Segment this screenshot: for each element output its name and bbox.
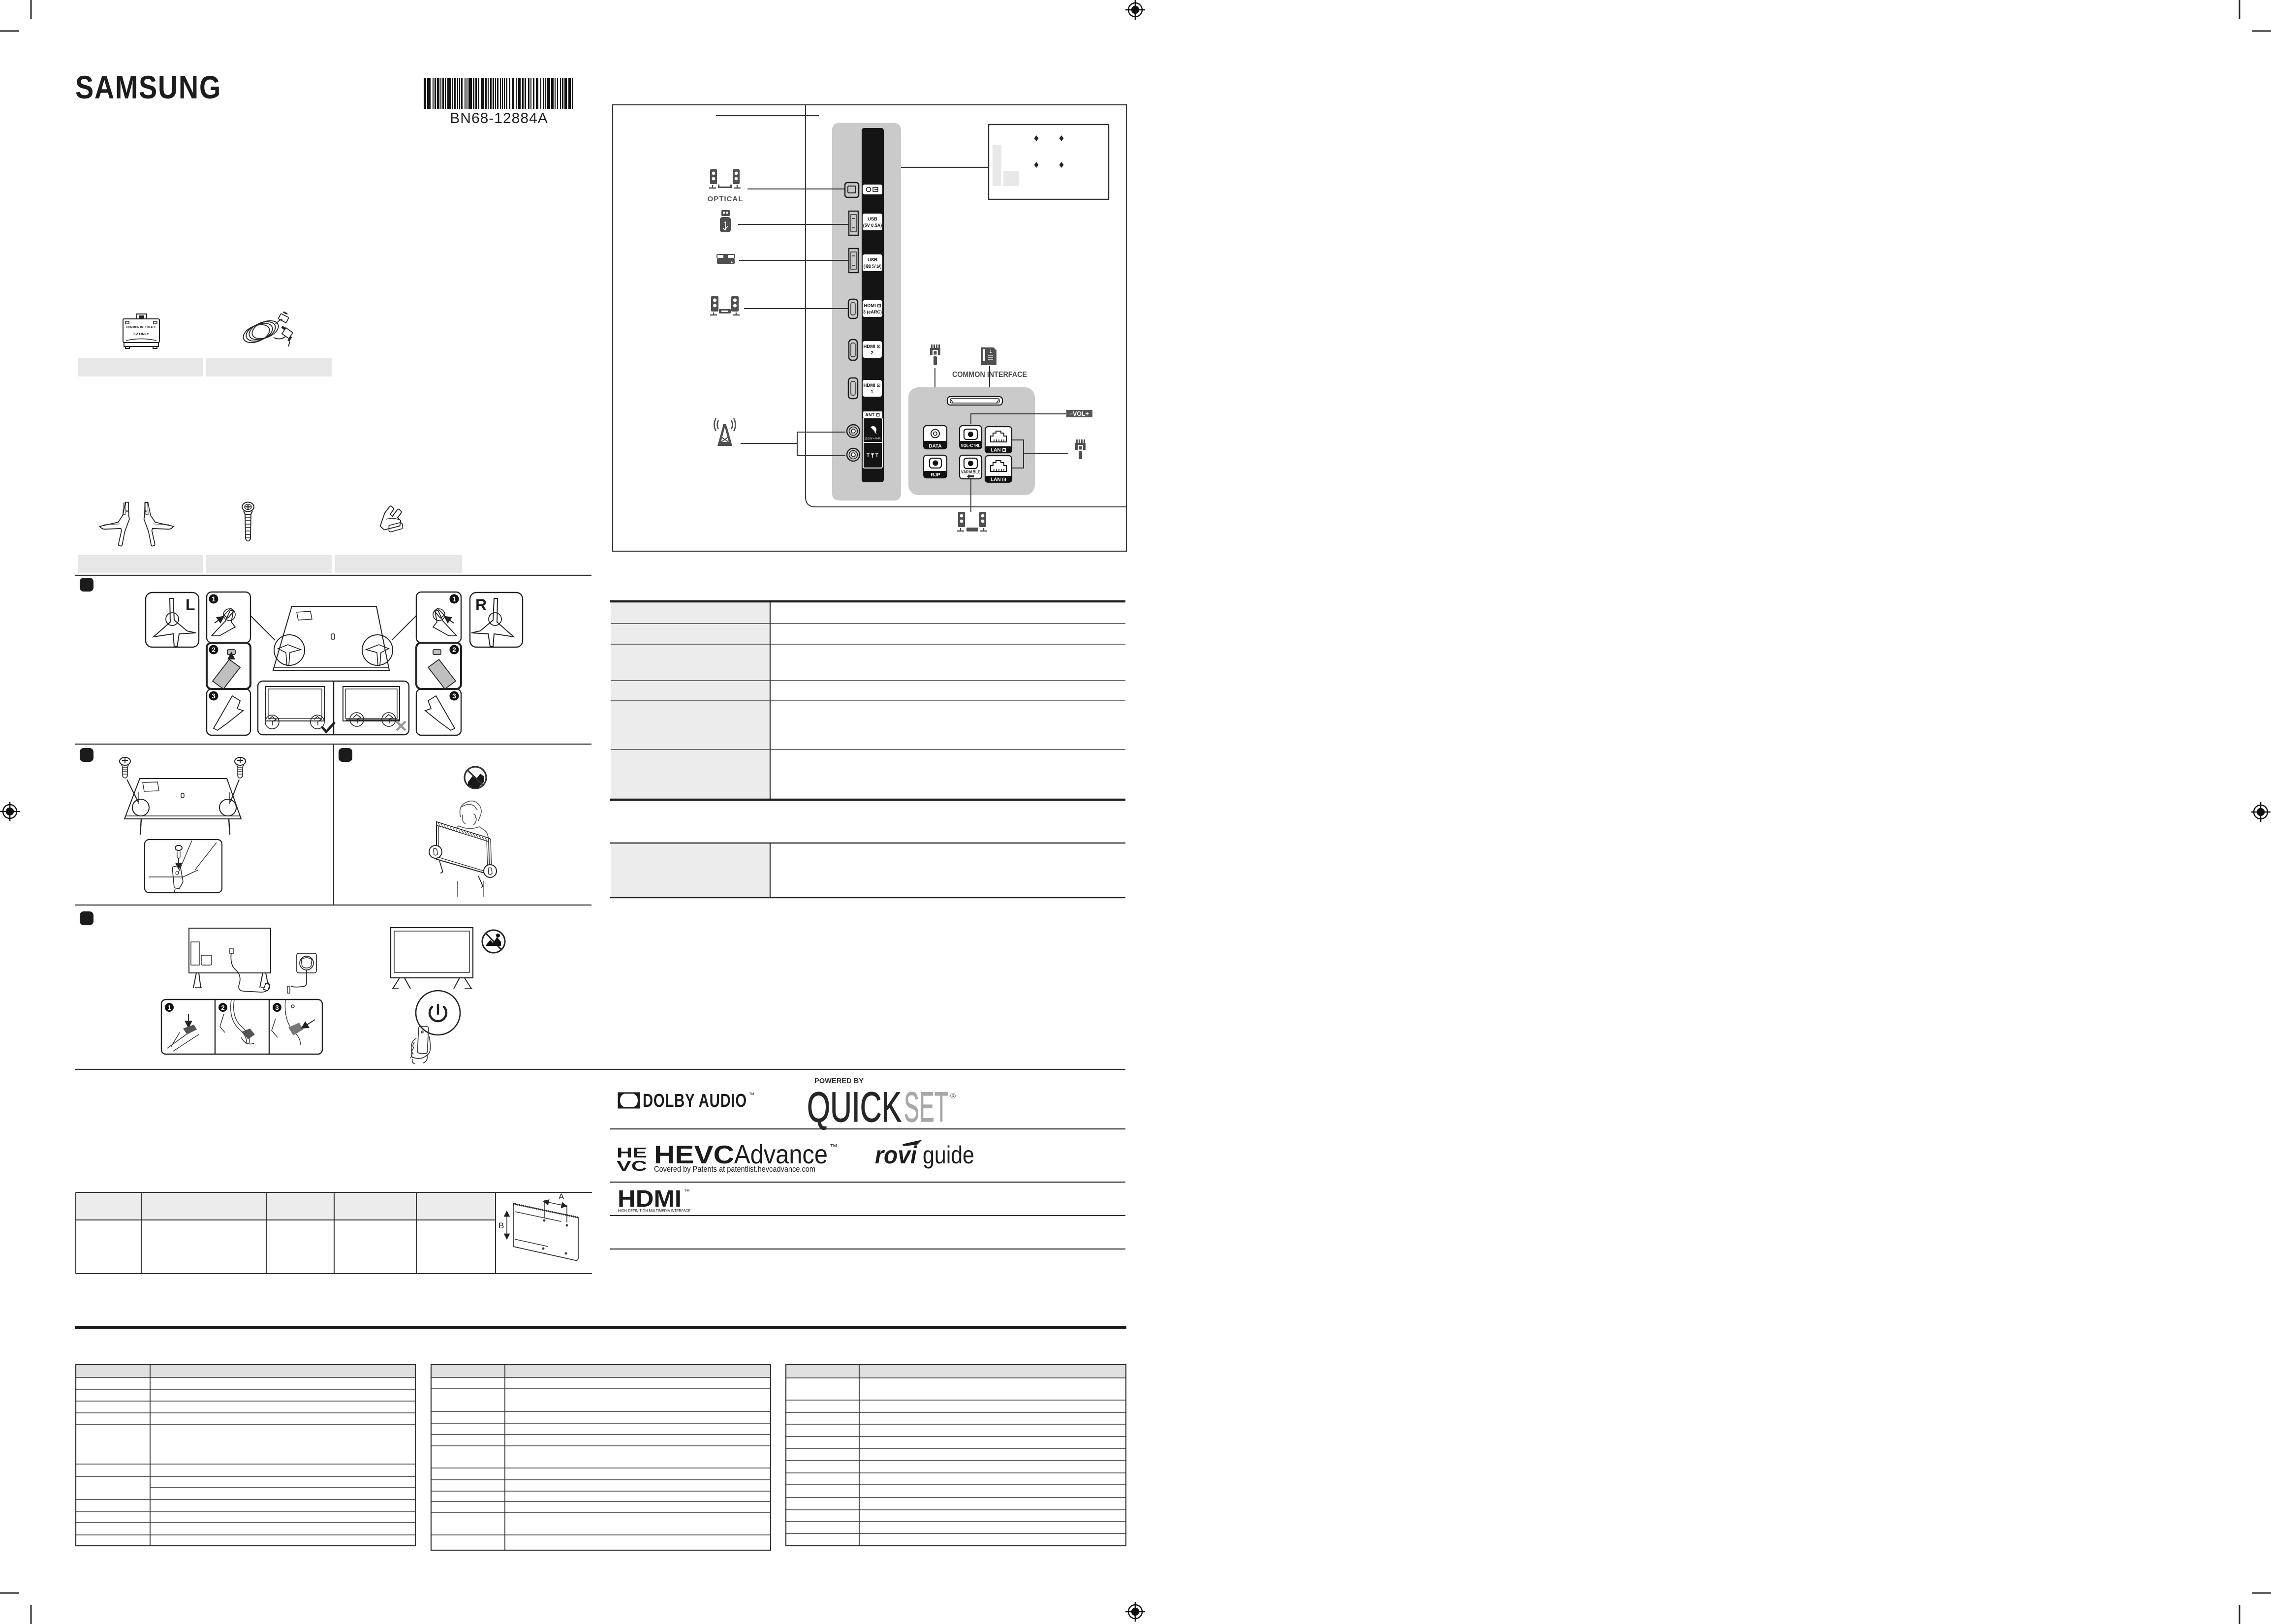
- svg-text:COMMON INTERFACE: COMMON INTERFACE: [126, 325, 156, 329]
- svg-text:L: L: [186, 596, 195, 614]
- svg-text:3: 3: [212, 692, 216, 700]
- svg-text:VARIABLE: VARIABLE: [961, 469, 980, 474]
- svg-text:rovi: rovi: [875, 1141, 917, 1169]
- svg-text:DOLBY AUDIO: DOLBY AUDIO: [643, 1091, 747, 1111]
- svg-text:5V ONLY: 5V ONLY: [133, 332, 149, 336]
- svg-text:–VOL+: –VOL+: [1069, 410, 1089, 417]
- svg-text:1: 1: [212, 595, 216, 603]
- svg-text:DATA: DATA: [929, 444, 941, 449]
- svg-text:3 (eARC): 3 (eARC): [863, 310, 882, 314]
- svg-text:SAMSUNG: SAMSUNG: [75, 69, 221, 105]
- svg-text:2: 2: [212, 646, 216, 654]
- svg-text:™: ™: [684, 1188, 690, 1195]
- svg-text:13/18V = 0.4A: 13/18V = 0.4A: [865, 437, 881, 440]
- svg-text:2: 2: [452, 646, 456, 654]
- svg-text:ANT ⊡: ANT ⊡: [865, 412, 880, 418]
- svg-text:3: 3: [452, 692, 456, 700]
- svg-text:QUICK: QUICK: [807, 1084, 902, 1131]
- svg-text:RJP: RJP: [931, 472, 940, 478]
- svg-text:LAN ⊡: LAN ⊡: [991, 477, 1006, 483]
- svg-text:™: ™: [830, 1143, 838, 1152]
- svg-text:BN68-12884A: BN68-12884A: [450, 110, 548, 126]
- svg-text:1: 1: [452, 595, 456, 603]
- svg-text:LAN ⊡: LAN ⊡: [991, 448, 1006, 453]
- svg-text:Covered by Patents at patentli: Covered by Patents at patentlist.hevcadv…: [654, 1165, 815, 1174]
- svg-text:USB: USB: [868, 217, 877, 222]
- svg-text:2: 2: [871, 350, 873, 355]
- svg-text:USB: USB: [868, 257, 877, 263]
- svg-text:B: B: [498, 1221, 504, 1230]
- svg-text:™: ™: [749, 1092, 754, 1098]
- svg-text:3: 3: [275, 1004, 279, 1011]
- svg-text:1: 1: [167, 1004, 171, 1011]
- svg-text:(HDD 5V 1A): (HDD 5V 1A): [864, 264, 881, 269]
- svg-text:A: A: [559, 1192, 564, 1201]
- svg-text:HDMI ⊡: HDMI ⊡: [864, 303, 881, 309]
- svg-text:HIGH-DEFINITION MULTIMEDIA INT: HIGH-DEFINITION MULTIMEDIA INTERFACE: [618, 1209, 690, 1213]
- svg-text:guide: guide: [923, 1141, 974, 1169]
- svg-text:OPTICAL: OPTICAL: [708, 195, 744, 203]
- svg-text:R: R: [475, 596, 487, 614]
- svg-text:SET: SET: [904, 1084, 948, 1131]
- svg-text:HDMI ⊡: HDMI ⊡: [864, 383, 881, 388]
- svg-text:VC: VC: [617, 1158, 647, 1174]
- svg-text:2: 2: [221, 1004, 224, 1011]
- svg-text:HDMI ⊡: HDMI ⊡: [864, 344, 881, 349]
- svg-text:®: ®: [950, 1092, 956, 1100]
- svg-text:(5V 0.5A): (5V 0.5A): [863, 223, 882, 228]
- svg-text:VOL-CTRL: VOL-CTRL: [961, 443, 981, 449]
- svg-text:1: 1: [871, 389, 873, 394]
- svg-text:1: 1: [989, 349, 992, 354]
